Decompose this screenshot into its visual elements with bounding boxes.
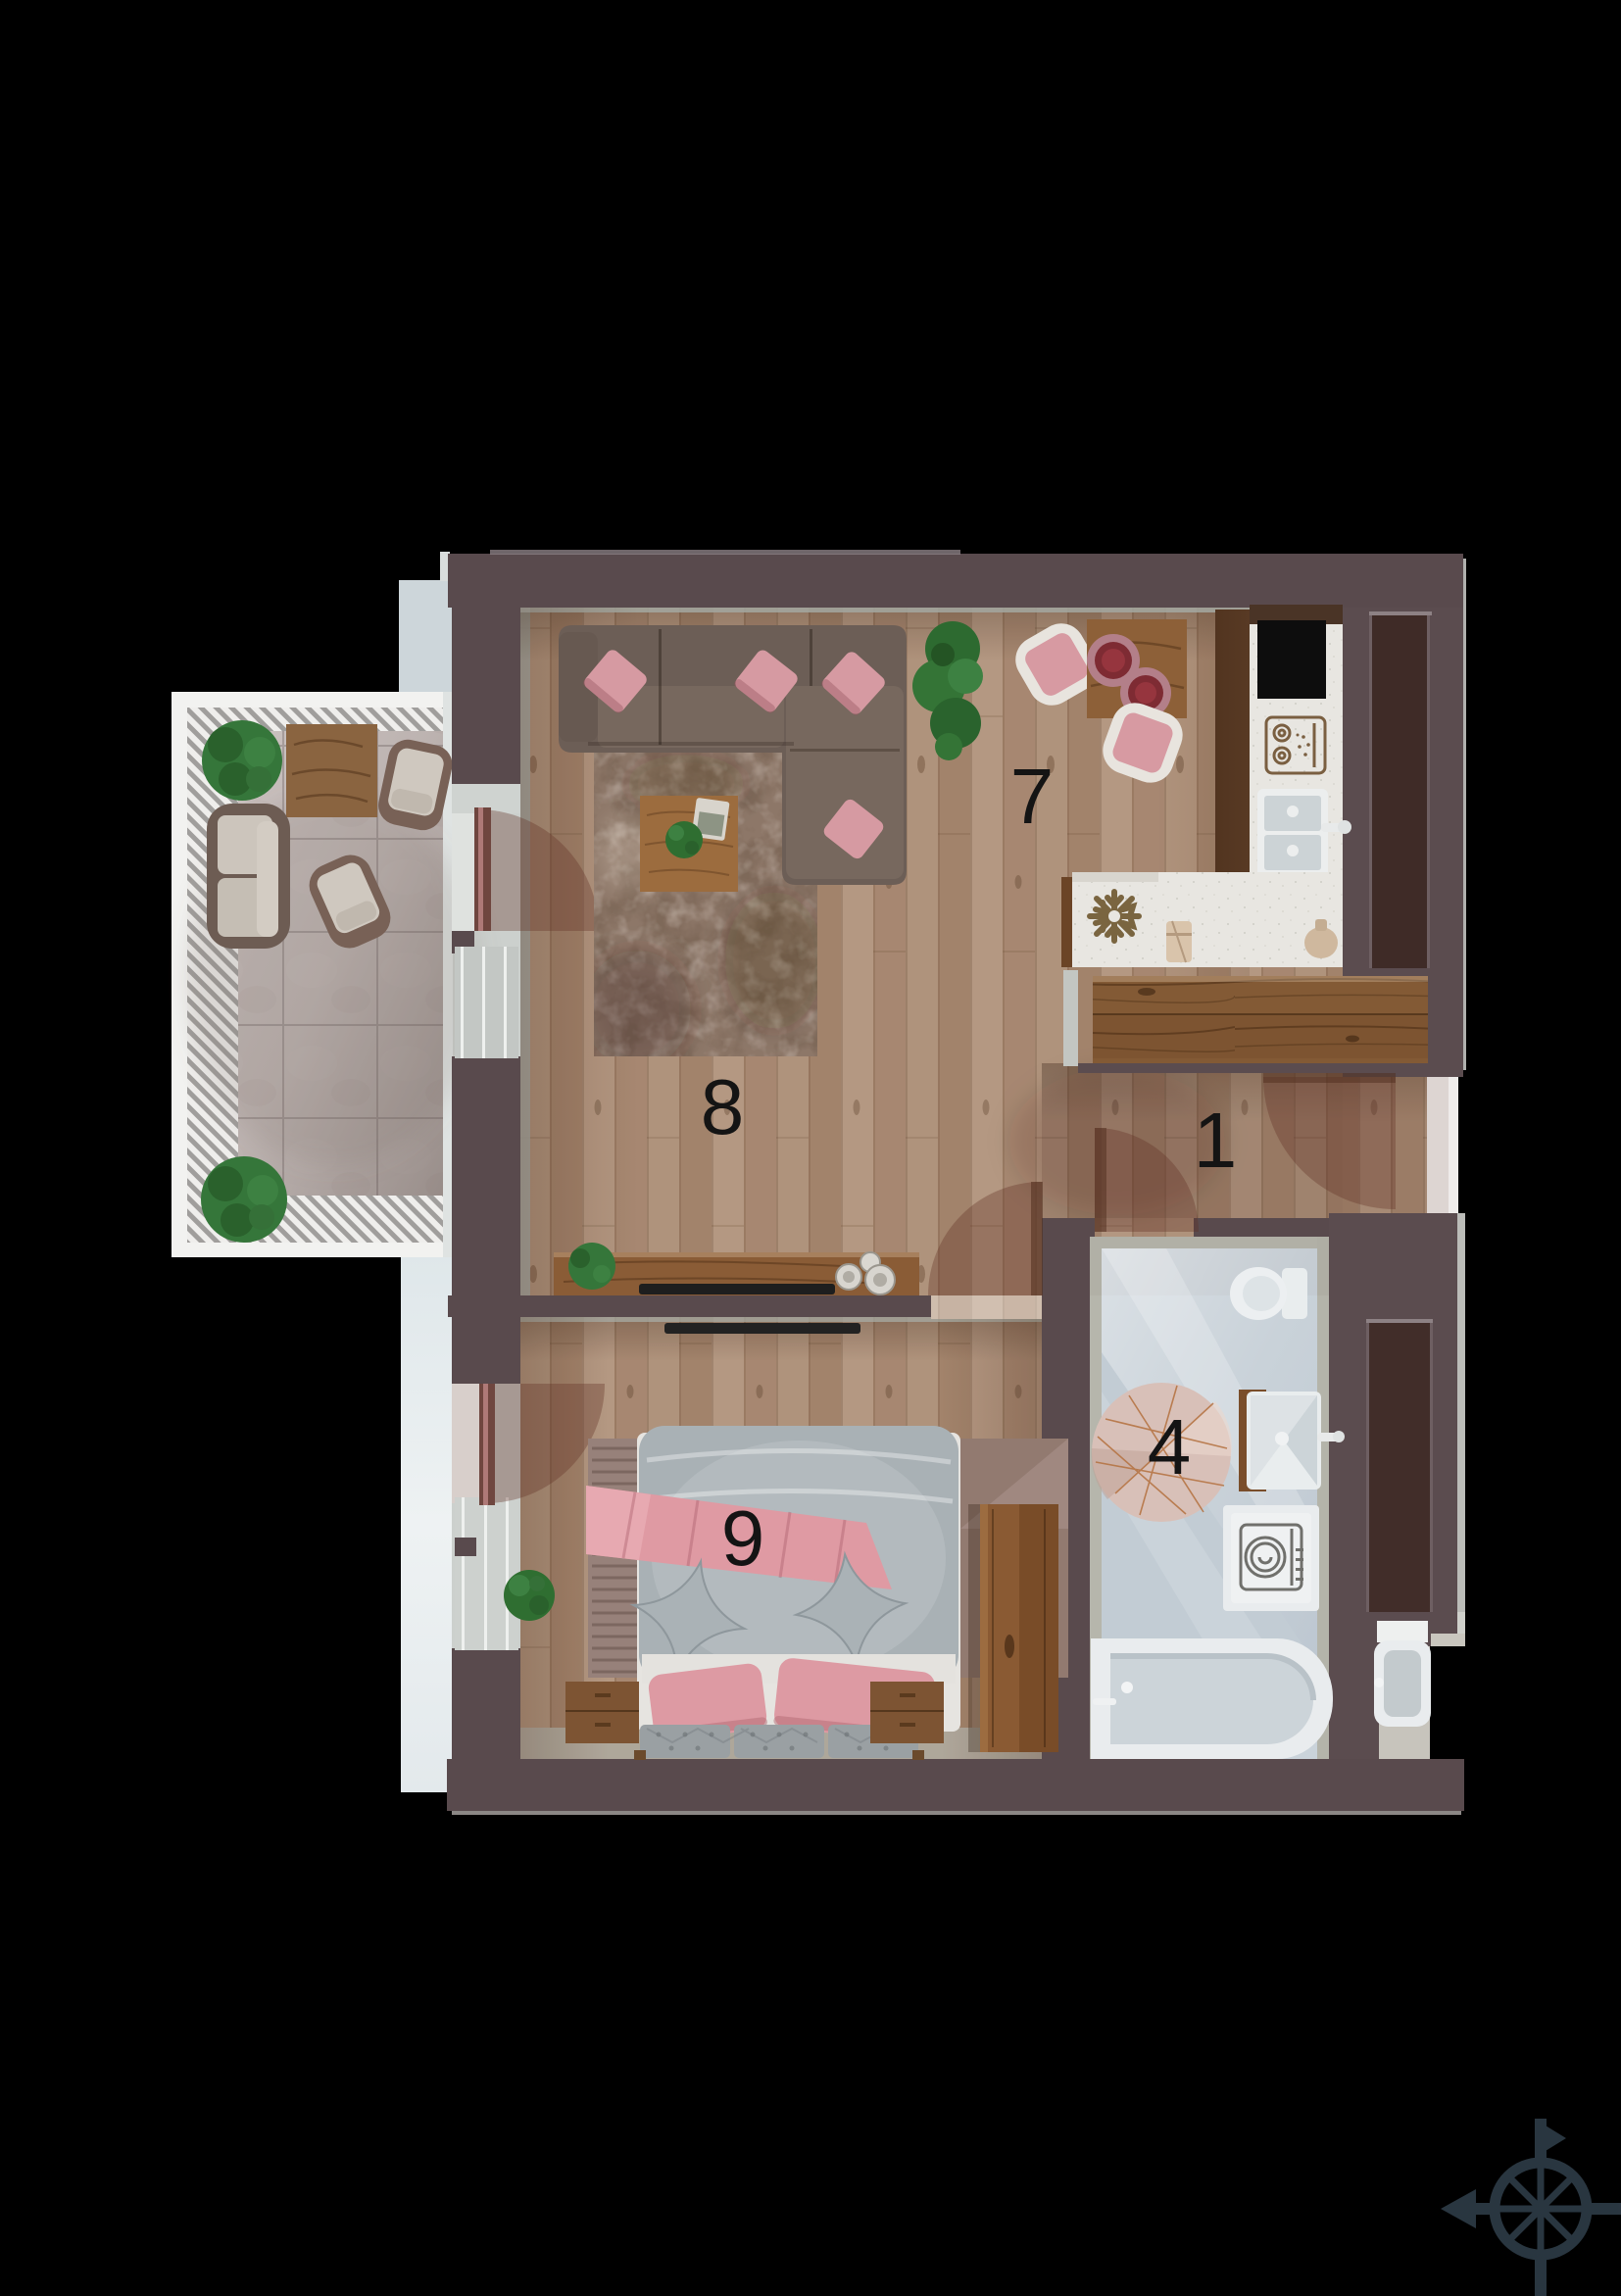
svg-text:1: 1 <box>1194 1097 1238 1184</box>
svg-text:7: 7 <box>1010 753 1055 840</box>
svg-text:4: 4 <box>1148 1403 1192 1490</box>
svg-text:9: 9 <box>721 1494 765 1582</box>
svg-text:8: 8 <box>701 1063 745 1150</box>
